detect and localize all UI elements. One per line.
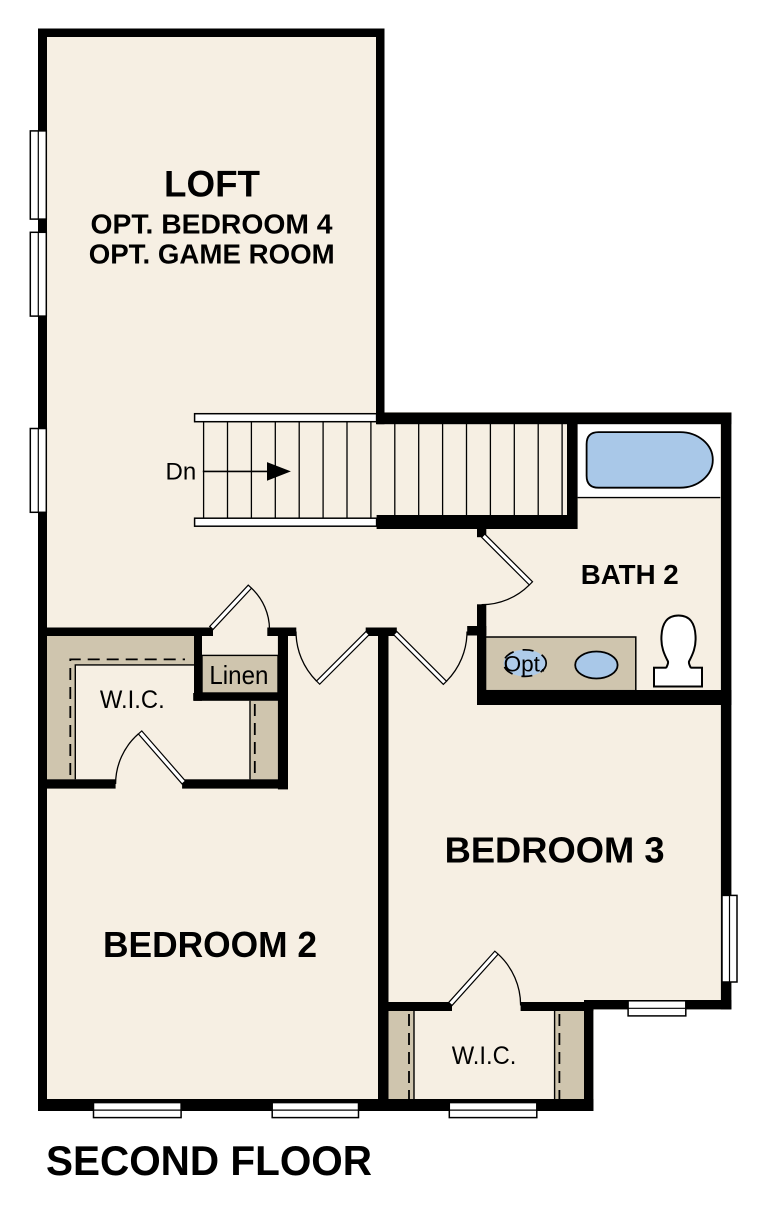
svg-text:W.I.C.: W.I.C.	[452, 1042, 517, 1070]
svg-text:SECOND FLOOR: SECOND FLOOR	[46, 1137, 372, 1184]
svg-text:Opt.: Opt.	[504, 651, 547, 676]
svg-text:BEDROOM 2: BEDROOM 2	[103, 924, 317, 965]
svg-text:W.I.C.: W.I.C.	[100, 686, 165, 714]
svg-text:OPT. GAME ROOM: OPT. GAME ROOM	[89, 239, 335, 270]
svg-text:Linen: Linen	[209, 660, 268, 690]
svg-text:Dn: Dn	[166, 458, 197, 485]
svg-text:LOFT: LOFT	[164, 164, 260, 205]
svg-text:OPT. BEDROOM 4: OPT. BEDROOM 4	[91, 209, 333, 240]
svg-text:BEDROOM 3: BEDROOM 3	[445, 830, 665, 871]
svg-text:BATH 2: BATH 2	[581, 559, 679, 590]
